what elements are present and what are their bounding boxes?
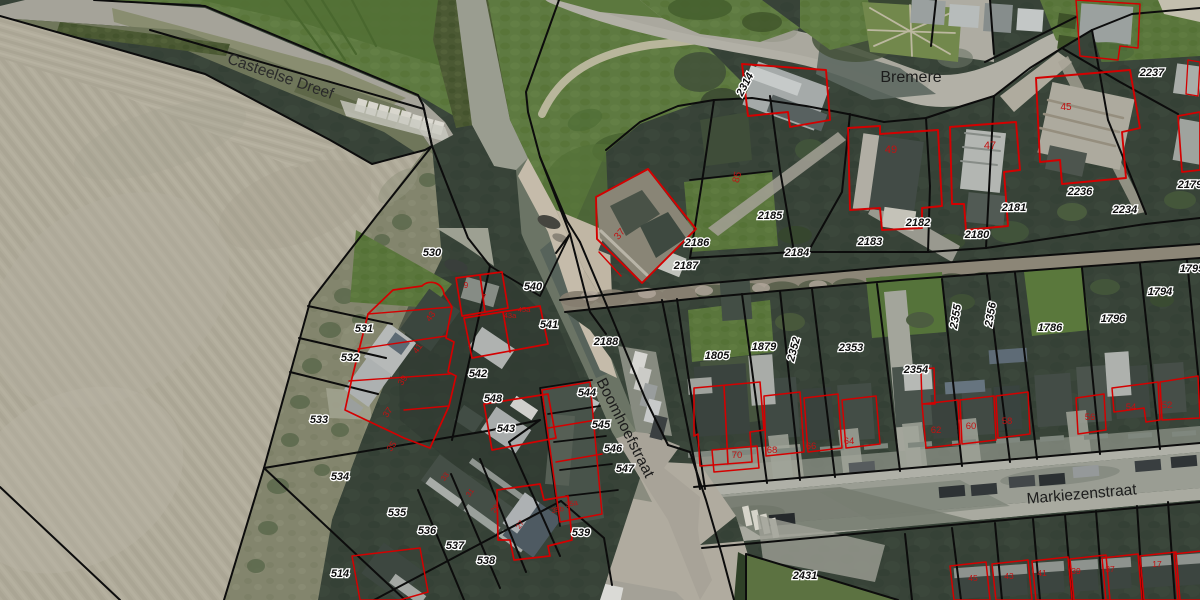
svg-text:2186: 2186 bbox=[684, 237, 710, 249]
svg-text:2180: 2180 bbox=[964, 229, 990, 241]
svg-text:39: 39 bbox=[1071, 566, 1081, 576]
svg-text:2353: 2353 bbox=[838, 342, 863, 354]
svg-text:543: 543 bbox=[497, 423, 515, 435]
svg-text:548: 548 bbox=[484, 393, 503, 405]
svg-text:537: 537 bbox=[446, 540, 465, 552]
svg-text:49: 49 bbox=[885, 144, 897, 156]
svg-text:9: 9 bbox=[464, 281, 469, 290]
svg-text:43a: 43a bbox=[504, 311, 517, 320]
svg-text:544: 544 bbox=[578, 387, 596, 399]
svg-text:532: 532 bbox=[341, 352, 359, 364]
svg-text:45: 45 bbox=[1060, 102, 1072, 113]
svg-text:17: 17 bbox=[1152, 559, 1162, 569]
svg-text:535: 535 bbox=[388, 507, 407, 519]
svg-text:1796: 1796 bbox=[1101, 313, 1126, 325]
svg-text:542: 542 bbox=[469, 368, 487, 380]
svg-text:2179: 2179 bbox=[1177, 179, 1200, 191]
svg-text:1794: 1794 bbox=[1148, 286, 1172, 298]
svg-text:2183: 2183 bbox=[857, 236, 882, 248]
svg-text:43: 43 bbox=[1004, 571, 1014, 581]
svg-text:56: 56 bbox=[1085, 412, 1096, 423]
svg-text:7: 7 bbox=[482, 293, 487, 302]
svg-text:66: 66 bbox=[806, 441, 817, 452]
svg-text:1786: 1786 bbox=[1038, 322, 1063, 334]
svg-text:546: 546 bbox=[604, 443, 623, 455]
svg-text:2187: 2187 bbox=[673, 260, 699, 272]
svg-text:545: 545 bbox=[592, 419, 611, 431]
svg-text:514: 514 bbox=[331, 568, 349, 580]
svg-text:2184: 2184 bbox=[784, 247, 809, 259]
svg-text:541: 541 bbox=[540, 319, 558, 331]
svg-text:68: 68 bbox=[767, 445, 778, 456]
svg-text:530: 530 bbox=[423, 247, 442, 259]
svg-text:2354: 2354 bbox=[903, 364, 928, 376]
svg-text:2185: 2185 bbox=[757, 210, 783, 222]
svg-text:2234: 2234 bbox=[1112, 204, 1137, 216]
svg-text:1879: 1879 bbox=[752, 341, 777, 353]
svg-text:531: 531 bbox=[355, 323, 373, 335]
svg-text:47: 47 bbox=[984, 140, 996, 152]
svg-text:70: 70 bbox=[732, 450, 743, 461]
svg-text:2237: 2237 bbox=[1139, 67, 1165, 79]
svg-text:45: 45 bbox=[968, 573, 978, 583]
svg-text:54: 54 bbox=[1126, 402, 1137, 413]
svg-text:1805: 1805 bbox=[705, 350, 730, 362]
svg-text:52: 52 bbox=[1162, 400, 1173, 411]
svg-text:41: 41 bbox=[1037, 568, 1047, 578]
svg-text:540: 540 bbox=[524, 281, 543, 293]
svg-text:536: 536 bbox=[418, 525, 437, 537]
svg-text:538: 538 bbox=[477, 555, 496, 567]
svg-text:539: 539 bbox=[572, 527, 591, 539]
svg-text:Bremere: Bremere bbox=[880, 69, 941, 86]
svg-text:2188: 2188 bbox=[593, 336, 619, 348]
svg-text:2182: 2182 bbox=[905, 217, 930, 229]
svg-text:534: 534 bbox=[331, 471, 349, 483]
svg-text:58: 58 bbox=[1002, 416, 1013, 427]
svg-text:45a: 45a bbox=[518, 305, 531, 314]
svg-text:533: 533 bbox=[310, 414, 328, 426]
svg-text:62: 62 bbox=[931, 425, 942, 436]
svg-text:547: 547 bbox=[616, 463, 635, 475]
svg-text:2431: 2431 bbox=[792, 570, 817, 582]
svg-text:2181: 2181 bbox=[1001, 202, 1026, 214]
svg-text:2236: 2236 bbox=[1067, 186, 1093, 198]
svg-text:1795: 1795 bbox=[1180, 263, 1200, 275]
svg-text:64: 64 bbox=[844, 436, 855, 447]
svg-text:37: 37 bbox=[1105, 564, 1115, 574]
svg-text:60: 60 bbox=[966, 421, 977, 432]
